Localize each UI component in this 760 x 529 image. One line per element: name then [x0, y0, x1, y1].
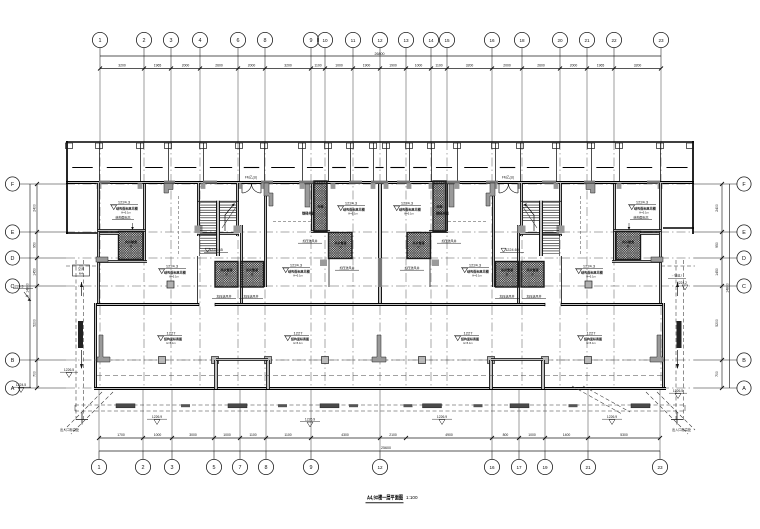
svg-text:1000: 1000	[223, 433, 231, 437]
svg-text:风井管道: 风井管道	[246, 267, 258, 272]
svg-text:H=5.1m: H=5.1m	[586, 274, 596, 278]
svg-text:9: 9	[310, 465, 313, 471]
svg-text:1224.2: 1224.2	[677, 281, 687, 285]
svg-text:2600: 2600	[537, 63, 545, 67]
svg-text:13: 13	[403, 38, 409, 43]
svg-text:700: 700	[715, 371, 719, 377]
svg-text:结构面标高见图: 结构面标高见图	[580, 269, 603, 274]
svg-text:16: 16	[489, 38, 495, 43]
svg-text:2000: 2000	[570, 63, 578, 67]
svg-text:结构面标高图: 结构面标高图	[291, 336, 309, 341]
svg-text:1965: 1965	[154, 63, 162, 67]
svg-text:8: 8	[264, 38, 267, 44]
svg-text:1: 1	[99, 38, 102, 44]
svg-text:2: 2	[143, 38, 146, 44]
svg-text:800: 800	[503, 433, 509, 437]
svg-text:1227: 1227	[464, 330, 474, 335]
svg-text:1226.9: 1226.9	[437, 415, 447, 419]
svg-text:17: 17	[516, 465, 522, 470]
svg-text:2400: 2400	[33, 204, 37, 212]
svg-text:1100: 1100	[284, 433, 291, 437]
svg-text:8: 8	[265, 465, 268, 471]
svg-text:结构面标高: 结构面标高	[115, 214, 130, 219]
svg-text:10: 10	[322, 38, 328, 43]
svg-text:电梯: 电梯	[436, 204, 442, 209]
svg-text:1224.3: 1224.3	[166, 263, 179, 268]
svg-text:加压送风井: 加压送风井	[243, 294, 258, 299]
svg-text:12: 12	[377, 38, 383, 43]
svg-text:9: 9	[310, 38, 313, 44]
svg-text:结构面标高: 结构面标高	[633, 214, 648, 219]
svg-text:1400: 1400	[563, 433, 571, 437]
svg-text:B: B	[11, 358, 15, 364]
svg-text:E: E	[742, 230, 746, 236]
svg-text:风井管道: 风井管道	[412, 240, 424, 245]
svg-text:1226.9: 1226.9	[305, 418, 315, 422]
svg-text:12: 12	[377, 465, 383, 470]
svg-text:5200: 5200	[715, 319, 719, 327]
svg-text:井: 井	[339, 246, 342, 250]
svg-text:23: 23	[658, 38, 664, 43]
svg-text:M4: M4	[79, 272, 83, 276]
svg-text:1224.3: 1224.3	[469, 262, 482, 267]
svg-text:H=5.1m: H=5.1m	[293, 273, 303, 277]
svg-text:1224.65: 1224.65	[209, 248, 223, 252]
svg-text:1450: 1450	[33, 268, 37, 276]
svg-text:结构面标高见图: 结构面标高见图	[163, 269, 186, 274]
svg-text:井: 井	[627, 245, 630, 249]
svg-text:D: D	[11, 256, 15, 262]
svg-text:井: 井	[225, 273, 228, 277]
svg-text:1900: 1900	[363, 63, 371, 67]
svg-text:1100: 1100	[435, 63, 442, 67]
svg-text:H=5.1m: H=5.1m	[472, 273, 482, 277]
svg-text:出入口标高处: 出入口标高处	[672, 427, 692, 432]
svg-text:2: 2	[142, 465, 145, 471]
svg-text:结构面标高见图: 结构面标高见图	[287, 268, 310, 273]
svg-text:A: A	[11, 386, 15, 392]
svg-text:FM乙(U): FM乙(U)	[245, 175, 257, 180]
svg-text:井: 井	[251, 273, 254, 277]
svg-text:结构面标高图: 结构面标高图	[164, 336, 182, 341]
svg-text:1227: 1227	[587, 330, 597, 335]
svg-text:20: 20	[557, 38, 563, 43]
svg-text:加压送风井: 加压送风井	[499, 294, 514, 299]
svg-text:←坡道J: ←坡道J	[671, 273, 682, 278]
svg-text:16: 16	[489, 465, 495, 470]
svg-text:5300: 5300	[620, 433, 628, 437]
svg-text:C: C	[742, 284, 746, 290]
svg-text:26800: 26800	[375, 52, 385, 56]
svg-text:1100: 1100	[314, 63, 321, 67]
svg-text:H=5.1m: H=5.1m	[348, 211, 358, 215]
svg-text:4300: 4300	[341, 433, 349, 437]
svg-text:2600: 2600	[215, 63, 223, 67]
svg-text:22: 22	[611, 38, 617, 43]
svg-text:1227: 1227	[167, 330, 177, 335]
svg-text:风井管道: 风井管道	[125, 239, 137, 244]
svg-text:23: 23	[657, 465, 663, 470]
svg-text:结构面标高图: 结构面标高图	[584, 336, 602, 341]
svg-text:井: 井	[417, 246, 420, 250]
svg-text:风井管道: 风井管道	[220, 267, 232, 272]
svg-text:结构面标高见图: 结构面标高见图	[466, 268, 489, 273]
svg-text:风井管道: 风井管道	[334, 240, 346, 245]
svg-text:21: 21	[585, 465, 591, 470]
svg-text:1227: 1227	[294, 330, 304, 335]
svg-text:H=5.1m: H=5.1m	[463, 341, 472, 345]
svg-text:1:100: 1:100	[406, 495, 418, 500]
svg-text:2000: 2000	[503, 63, 511, 67]
svg-text:1000: 1000	[335, 63, 343, 67]
svg-text:钢梯井道: 钢梯井道	[436, 211, 450, 216]
svg-text:加压送风井: 加压送风井	[339, 265, 354, 270]
svg-text:3: 3	[171, 465, 174, 471]
svg-text:结构面标高图: 结构面标高图	[461, 336, 479, 341]
svg-text:风井管道: 风井管道	[622, 239, 634, 244]
svg-text:7: 7	[239, 465, 242, 471]
svg-text:H=5.1m: H=5.1m	[586, 341, 595, 345]
svg-text:加压送风井: 加压送风井	[216, 294, 231, 299]
svg-text:1224.3: 1224.3	[345, 200, 358, 205]
svg-text:结构面标高见图: 结构面标高见图	[342, 206, 365, 211]
svg-text:700: 700	[33, 371, 37, 377]
svg-text:1: 1	[98, 465, 101, 471]
svg-text:H=5.1m: H=5.1m	[404, 211, 414, 215]
svg-text:950: 950	[715, 242, 719, 248]
svg-text:2000: 2000	[182, 63, 190, 67]
svg-text:1100: 1100	[249, 433, 256, 437]
svg-text:H=5.1m: H=5.1m	[639, 210, 649, 214]
svg-text:14: 14	[428, 38, 434, 43]
svg-text:3200: 3200	[634, 63, 642, 67]
svg-text:2400: 2400	[715, 204, 719, 212]
svg-text:1224.3: 1224.3	[118, 199, 131, 204]
svg-text:14800: 14800	[26, 283, 30, 293]
svg-text:5200: 5200	[33, 319, 37, 327]
svg-text:加压送风井: 加压送风井	[302, 238, 317, 243]
svg-text:结构面标高见图: 结构面标高见图	[633, 205, 656, 210]
svg-text:1224.60: 1224.60	[505, 248, 519, 252]
svg-text:1226.9: 1226.9	[607, 415, 617, 419]
svg-text:3200: 3200	[118, 63, 126, 67]
svg-text:1224.3: 1224.3	[290, 262, 303, 267]
svg-text:FM乙(U): FM乙(U)	[502, 175, 514, 180]
svg-text:1224.3: 1224.3	[583, 263, 596, 268]
svg-text:1224.3: 1224.3	[401, 200, 414, 205]
svg-text:4900: 4900	[445, 433, 453, 437]
svg-text:14800: 14800	[726, 283, 730, 293]
svg-text:3: 3	[170, 38, 173, 44]
svg-text:加压送风井: 加压送风井	[404, 265, 419, 270]
svg-text:1226.5: 1226.5	[64, 368, 74, 372]
svg-text:风井管道: 风井管道	[526, 267, 538, 272]
svg-text:3200: 3200	[466, 63, 474, 67]
svg-text:21: 21	[584, 38, 590, 43]
svg-text:A4,9#楼一层平面图: A4,9#楼一层平面图	[367, 494, 403, 502]
svg-text:井: 井	[130, 245, 133, 249]
svg-text:19: 19	[542, 465, 548, 470]
svg-text:1224.3: 1224.3	[636, 199, 649, 204]
svg-text:风井管道: 风井管道	[501, 267, 513, 272]
svg-text:1000: 1000	[528, 433, 536, 437]
svg-text:1900: 1900	[389, 63, 397, 67]
svg-text:电梯: 电梯	[317, 204, 323, 209]
svg-text:2100: 2100	[389, 433, 397, 437]
svg-text:E: E	[11, 230, 15, 236]
svg-text:1224.3: 1224.3	[13, 285, 23, 289]
svg-text:4: 4	[199, 38, 202, 44]
svg-text:1700: 1700	[117, 433, 125, 437]
svg-text:3000: 3000	[189, 433, 197, 437]
svg-text:H=5.1m: H=5.1m	[169, 274, 179, 278]
svg-text:1224.5: 1224.5	[16, 383, 26, 387]
svg-text:1450: 1450	[715, 268, 719, 276]
svg-text:钢梯井道: 钢梯井道	[302, 211, 316, 216]
svg-text:H=5.1m: H=5.1m	[166, 341, 175, 345]
svg-text:1000: 1000	[154, 433, 162, 437]
svg-text:25600: 25600	[381, 446, 391, 450]
svg-text:H=5.1m: H=5.1m	[293, 341, 302, 345]
svg-text:1226.5: 1226.5	[673, 389, 683, 393]
svg-text:2000: 2000	[248, 63, 256, 67]
svg-text:加压送风井: 加压送风井	[526, 294, 541, 299]
svg-text:15: 15	[444, 38, 450, 43]
svg-text:3200: 3200	[284, 63, 292, 67]
svg-text:井: 井	[506, 273, 509, 277]
svg-text:18: 18	[519, 38, 525, 43]
svg-text:加压送风井: 加压送风井	[441, 238, 456, 243]
svg-text:空调: 空调	[78, 266, 84, 271]
svg-text:1965: 1965	[597, 63, 605, 67]
svg-text:6: 6	[237, 38, 240, 44]
svg-text:D: D	[742, 256, 746, 262]
svg-text:11: 11	[351, 38, 356, 43]
svg-text:1226.9: 1226.9	[152, 415, 162, 419]
svg-text:A: A	[742, 386, 746, 392]
svg-text:B: B	[742, 358, 746, 364]
svg-text:H=5.1m: H=5.1m	[121, 210, 131, 214]
svg-text:1000: 1000	[415, 63, 423, 67]
svg-text:井: 井	[531, 273, 534, 277]
svg-text:5: 5	[213, 465, 216, 471]
svg-text:45: 45	[25, 294, 29, 298]
svg-text:出入口标高处: 出入口标高处	[60, 427, 80, 432]
svg-text:结构面标高见图: 结构面标高见图	[398, 206, 421, 211]
svg-text:结构面标高见图: 结构面标高见图	[115, 205, 138, 210]
svg-text:950: 950	[33, 242, 37, 248]
